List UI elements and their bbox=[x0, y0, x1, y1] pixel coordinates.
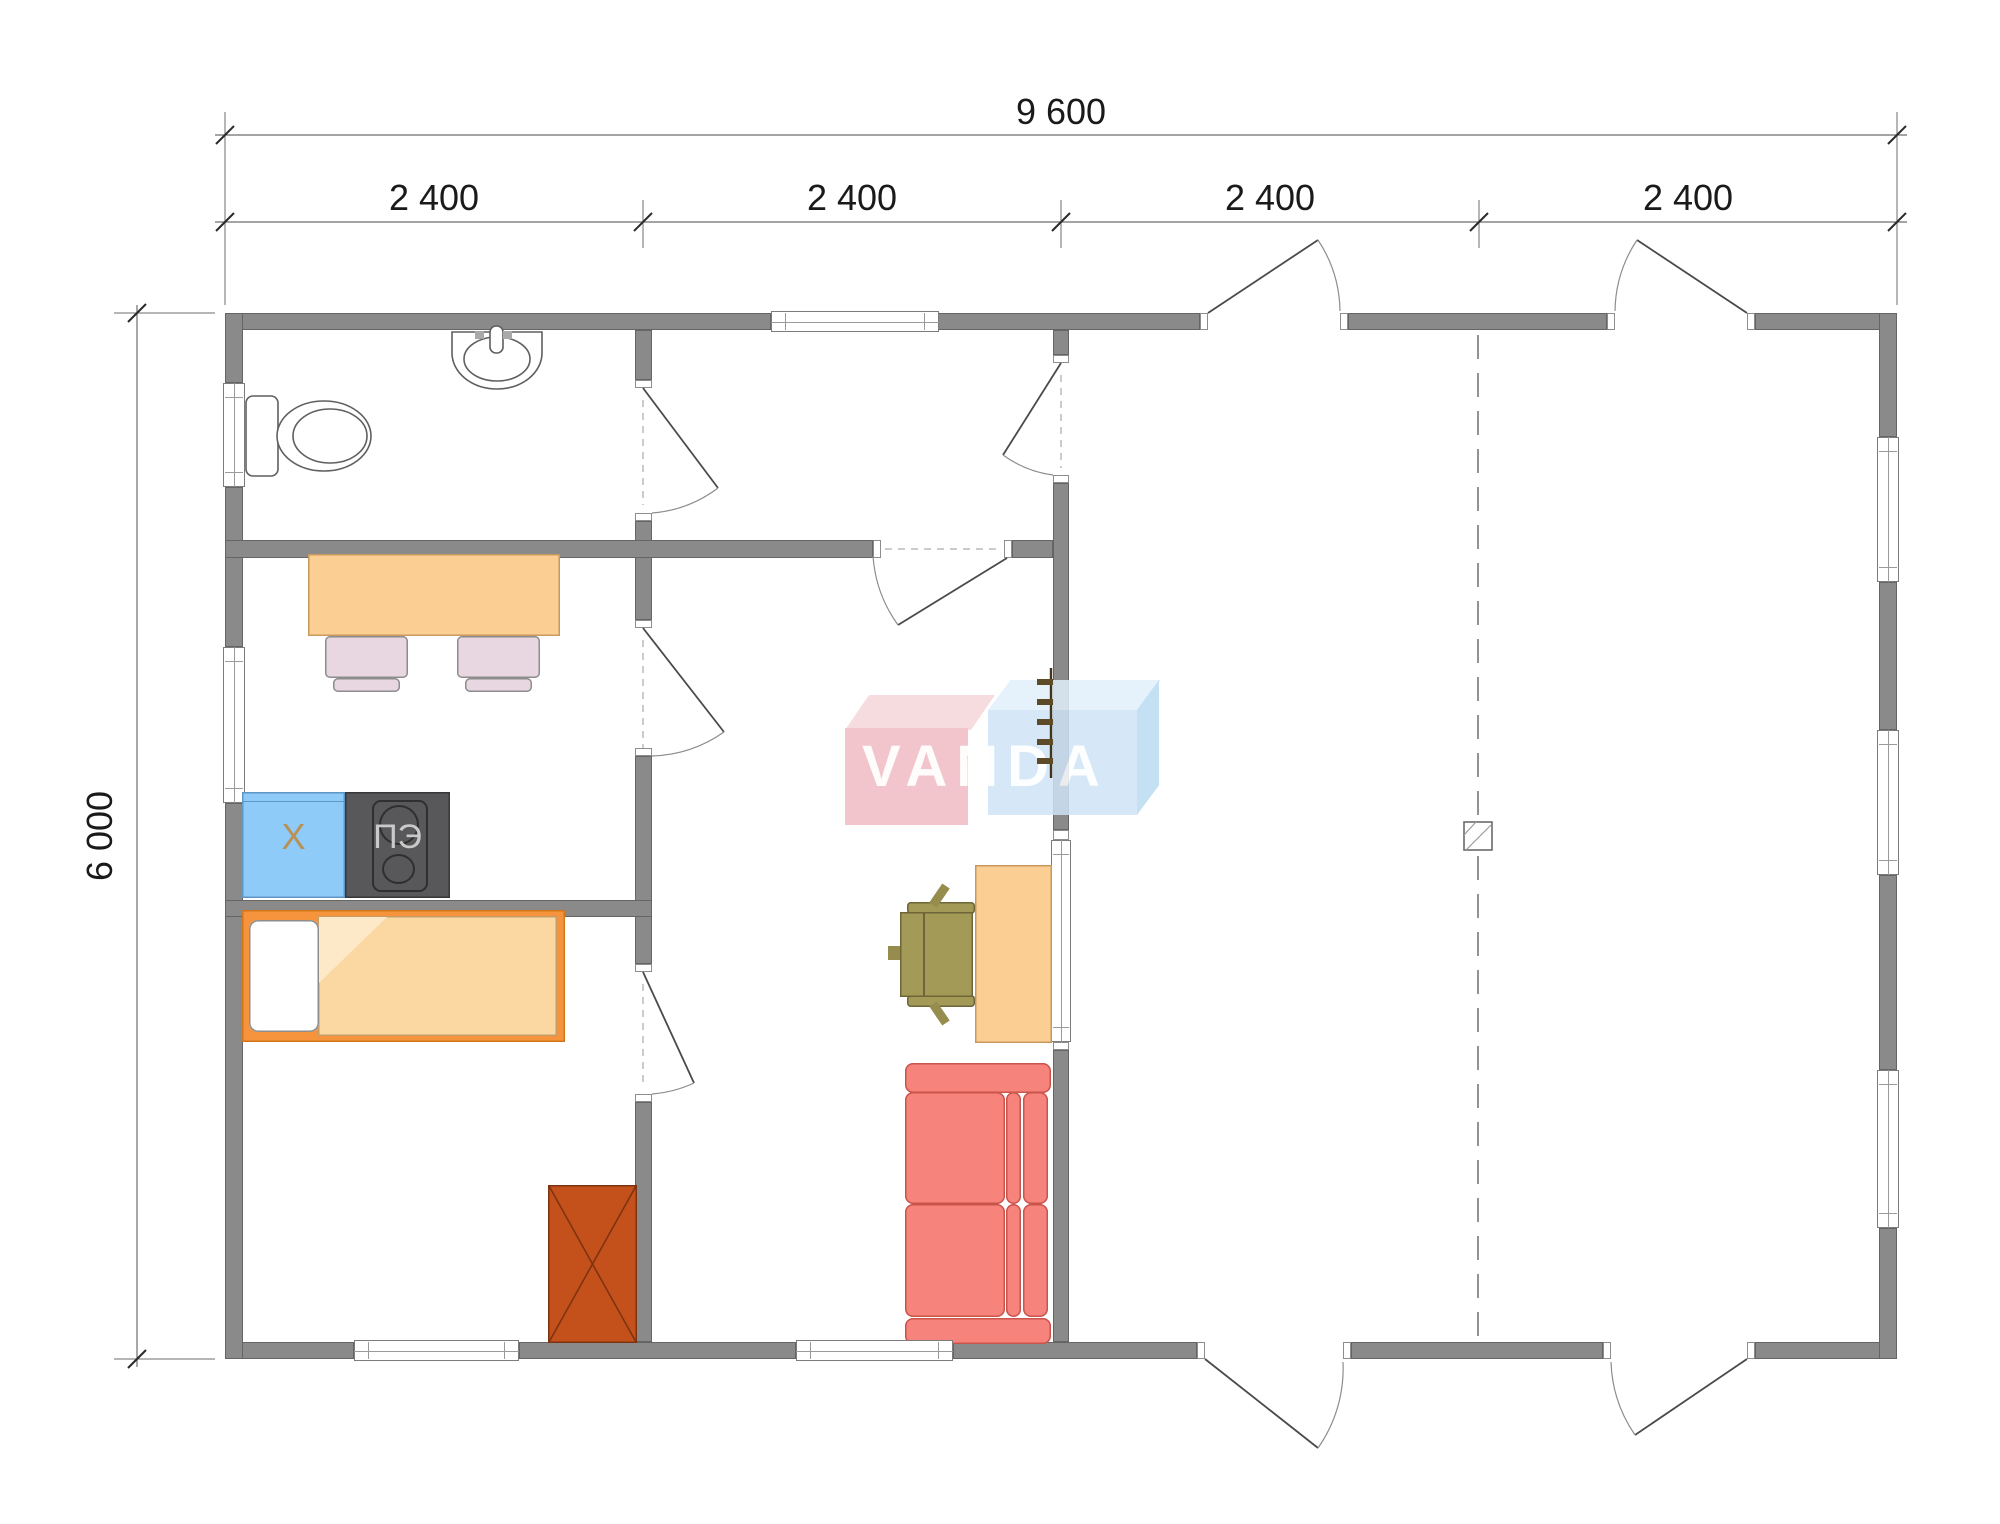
dim-overall-width: 9 600 bbox=[1016, 91, 1106, 132]
hall-living-door-leaf bbox=[898, 558, 1007, 625]
dim-overall-height: 6 000 bbox=[79, 791, 120, 881]
column bbox=[1464, 822, 1492, 850]
terrace-north-door2-leaf bbox=[1637, 240, 1747, 313]
hall-terrace-door-leaf bbox=[1003, 363, 1061, 455]
bedroom-door-leaf bbox=[643, 972, 694, 1083]
floor-plan-canvas: VANDA bbox=[0, 0, 2000, 1524]
terrace-south-door2-leaf bbox=[1635, 1359, 1747, 1435]
dimension-lines bbox=[114, 112, 1907, 1367]
dim-segment-2: 2 400 bbox=[807, 177, 897, 218]
sink bbox=[452, 326, 542, 389]
ladder bbox=[1037, 668, 1053, 778]
terrace-south-door1-leaf bbox=[1205, 1359, 1318, 1448]
dim-segment-1: 2 400 bbox=[389, 177, 479, 218]
wardrobe-cross bbox=[549, 1186, 636, 1342]
linework-overlay: 9 600 2 400 2 400 2 400 2 400 6 000 bbox=[0, 0, 2000, 1524]
office-chair-legs bbox=[888, 886, 946, 1023]
dimension-labels: 9 600 2 400 2 400 2 400 2 400 6 000 bbox=[79, 91, 1733, 881]
dim-segment-3: 2 400 bbox=[1225, 177, 1315, 218]
ridge-line bbox=[1464, 335, 1492, 1338]
door-leaves bbox=[643, 240, 1747, 1448]
dim-segment-4: 2 400 bbox=[1643, 177, 1733, 218]
kitchen-door-leaf bbox=[643, 628, 724, 732]
toilet bbox=[246, 396, 371, 476]
terrace-north-door1-leaf bbox=[1208, 240, 1318, 313]
dimension-ticks bbox=[128, 126, 1906, 1368]
door-headers bbox=[643, 375, 1061, 1086]
bathroom-door-leaf bbox=[643, 388, 718, 488]
